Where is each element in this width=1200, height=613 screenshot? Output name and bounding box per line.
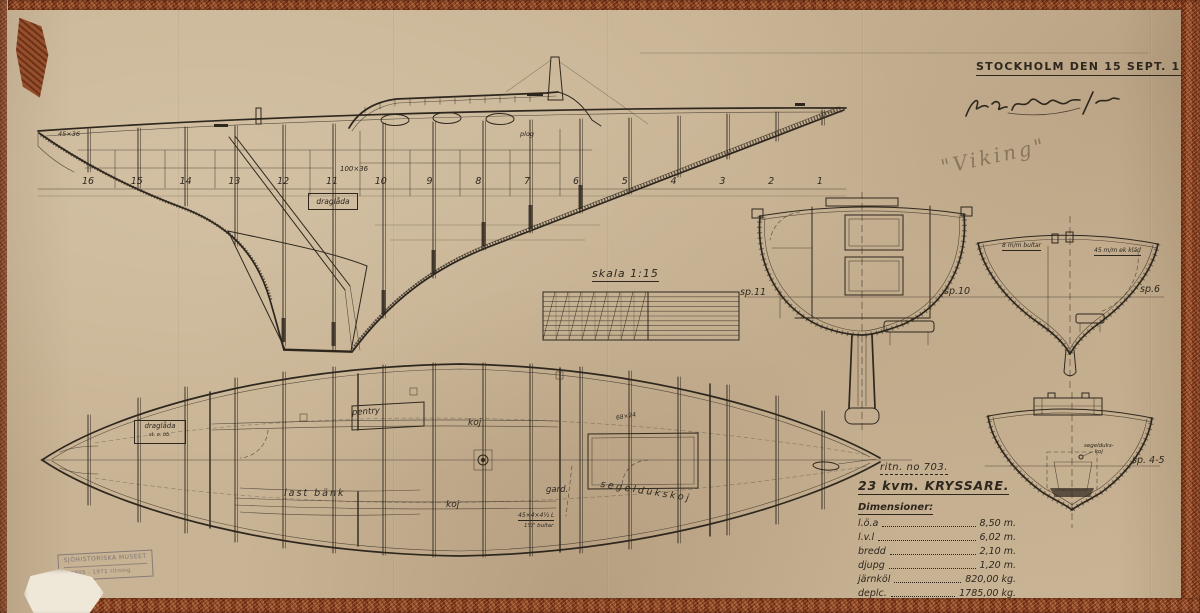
frame-number: 8 xyxy=(470,176,486,187)
dimension-row: l.ö.a8,50 m. xyxy=(858,518,1016,529)
plog-label: plog xyxy=(520,130,534,138)
frame-number: 4 xyxy=(666,176,682,187)
midship-section xyxy=(744,192,1164,432)
scale-bar xyxy=(543,292,739,340)
plan-dim-note1: 45×4×4½ L xyxy=(518,512,554,521)
mast xyxy=(548,57,563,100)
section-label-sp11: sp.11 xyxy=(740,287,766,298)
segelduks-koj-note: segelduks- koj xyxy=(1084,443,1114,455)
frame-number: 13 xyxy=(226,176,242,187)
dim-label: l.v.l xyxy=(858,532,874,543)
frame-number: 2 xyxy=(763,176,779,187)
koj-aft-label: koj xyxy=(446,500,459,510)
bow-dimension: 45×36 xyxy=(58,130,80,138)
tape-edge-top xyxy=(8,0,1200,10)
section-label-sp45: sp. 4-5 xyxy=(1132,455,1165,466)
dimension-row: järnköl820,00 kg. xyxy=(858,574,1016,585)
frame-number: 12 xyxy=(275,176,291,187)
pentry-label: pentry xyxy=(352,406,381,418)
frame-number: 3 xyxy=(714,176,730,187)
planking-note: 45 m/m ek kläd xyxy=(1094,247,1141,256)
draglada-text: draglåda xyxy=(135,421,185,432)
frame-number: 1 xyxy=(812,176,828,187)
porthole xyxy=(486,114,514,125)
frame-number: 6 xyxy=(568,176,584,187)
dim-value: 820,00 kg. xyxy=(965,574,1016,585)
frame-number: 11 xyxy=(324,176,340,187)
frame-number: 9 xyxy=(422,176,438,187)
tiller xyxy=(813,461,839,471)
porthole xyxy=(381,115,409,126)
cabin-window xyxy=(845,257,903,295)
frame-number: 16 xyxy=(80,176,96,187)
dim-value: 8,50 m. xyxy=(980,518,1016,529)
dim-label: djupg xyxy=(858,560,885,571)
frame-number: 14 xyxy=(178,176,194,187)
rudder-stock xyxy=(229,136,350,290)
draglada-profile-label: draglåda xyxy=(308,193,358,210)
info-block: ritn. no 703. 23 kvm. KRYSSARE. Dimensio… xyxy=(858,455,1016,599)
frame-number: 15 xyxy=(129,176,145,187)
profile-view xyxy=(38,57,846,352)
draglada-subtext: st. o. bb. xyxy=(135,432,185,438)
dimension-row: l.v.l6,02 m. xyxy=(858,532,1016,543)
construction-drawing xyxy=(0,0,1200,613)
plan-dim-note2: 1½" bultar xyxy=(524,523,553,529)
dim-label: bredd xyxy=(858,546,886,557)
dim-value: 6,02 m. xyxy=(980,532,1016,543)
frame-number: 10 xyxy=(373,176,389,187)
boat-type-title: 23 kvm. KRYSSARE. xyxy=(858,478,1009,495)
drawing-sheet: 16 15 14 13 12 11 10 9 8 7 6 5 4 3 2 1 d… xyxy=(0,0,1200,613)
tape-edge-bottom xyxy=(55,598,1200,613)
dim-label: l.ö.a xyxy=(858,518,878,529)
frame-number: 5 xyxy=(617,176,633,187)
dimension-row: djupg1,20 m. xyxy=(858,560,1016,571)
bolt-note: 8 m/m bultar xyxy=(1002,242,1041,251)
dim-label: järnköl xyxy=(858,574,890,585)
cabin-window xyxy=(845,215,903,250)
dimensions-heading: Dimensioner: xyxy=(858,502,933,515)
segelduks-line2: koj xyxy=(1084,449,1114,455)
scale-label: skala 1:15 xyxy=(592,267,659,282)
drawing-number: ritn. no 703. xyxy=(880,462,948,475)
section-label-sp10: sp.10 xyxy=(944,286,970,297)
vent xyxy=(256,108,261,124)
skylight xyxy=(1034,398,1102,415)
plan-view xyxy=(40,363,912,557)
dim-value: 2,10 m. xyxy=(980,546,1016,557)
title-date-line: STOCKHOLM DEN 15 SEPT. 1944 xyxy=(976,60,1200,76)
tape-edge-right xyxy=(1181,0,1200,613)
koj-forward-label: koj xyxy=(468,418,481,428)
gard-label: gard. xyxy=(546,485,568,495)
draglada-plan-label: draglåda st. o. bb. xyxy=(134,420,186,444)
dim-value: 1,20 m. xyxy=(980,560,1016,571)
tape-edge-left xyxy=(0,0,7,613)
signature xyxy=(966,92,1119,116)
last-bank-label: last bänk xyxy=(284,488,346,499)
section-label-sp6: sp.6 xyxy=(1140,284,1160,295)
frame-number: 7 xyxy=(519,176,535,187)
frame-number-row: 16 15 14 13 12 11 10 9 8 7 6 5 4 3 2 1 xyxy=(80,176,828,187)
keel-fin xyxy=(228,231,367,351)
deck-dimension: 100×36 xyxy=(340,165,368,173)
dimension-row: bredd2,10 m. xyxy=(858,546,1016,557)
profile-frames xyxy=(88,110,825,350)
